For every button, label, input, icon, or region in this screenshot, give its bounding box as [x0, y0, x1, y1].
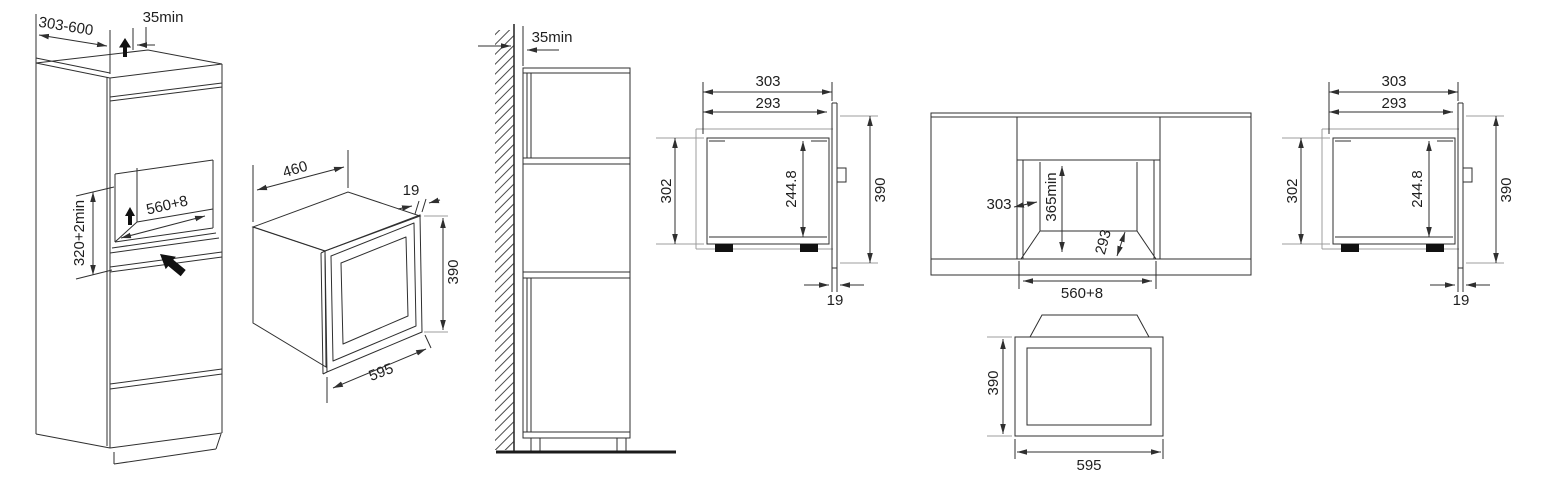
wall-hatching: [495, 30, 514, 450]
cabinet-plinth: [114, 434, 221, 464]
oven-frame-front: [1015, 337, 1163, 436]
oven-door-slab: [1458, 103, 1463, 292]
oven-cavity-lines: [1335, 141, 1453, 237]
niche-sill: [110, 233, 219, 253]
view-front-oven: 390 595: [985, 315, 1163, 474]
oven-body-top-face: [253, 192, 420, 251]
view-iso-tall-cabinet: 303-600 35min 560+8 320+2min: [36, 9, 222, 464]
dim-label-door-thickness: 19: [1453, 292, 1470, 309]
installation-diagram: 303-600 35min 560+8 320+2min 460 19 390: [0, 0, 1552, 486]
oven-foot-back: [1341, 244, 1359, 252]
cabinet-side-outline: [523, 68, 630, 438]
dim-label-body-height: 302: [1284, 178, 1301, 203]
niche-outline: [1322, 129, 1459, 249]
dim-label-cavity-height: 244.8: [783, 170, 800, 208]
dim-label-front-height: 390: [985, 370, 1002, 395]
dim-label-front-height: 390: [872, 177, 889, 202]
dim-label-niche-height: 320+2min: [71, 200, 88, 266]
dim-label-niche-side-depth: 303: [986, 196, 1011, 213]
lower-door: [110, 252, 222, 389]
cabinet-top-face: [36, 50, 222, 78]
front-width-extension-lines: [1015, 439, 1163, 459]
cabinet-foot-right: [617, 438, 626, 451]
door-handle-latch: [837, 168, 846, 182]
dim-label-overall-depth: 303: [755, 73, 780, 90]
view-iso-oven: 460 19 390 595: [253, 150, 462, 403]
dim-label-door-thickness: 19: [827, 292, 844, 309]
oven-foot-front: [1426, 244, 1444, 252]
dim-label-body-height: 302: [658, 178, 675, 203]
dim-label-niche-height: 365min: [1043, 172, 1060, 221]
niche-up-arrow-icon: [125, 207, 135, 225]
diagram-canvas: 303-600 35min 560+8 320+2min 460 19 390: [0, 0, 1552, 486]
oven-door-window: [341, 237, 408, 344]
dim-label-body-depth: 293: [755, 95, 780, 112]
oven-body-behind: [1030, 315, 1149, 337]
door-thickness-arrow-left: [398, 206, 412, 209]
door-handle-latch: [1463, 168, 1472, 182]
dim-label-depth-range: 303-600: [37, 14, 94, 39]
dim-label-body-depth: 293: [1381, 95, 1406, 112]
door-thickness-arrow-right: [429, 200, 440, 203]
dim-label-front-height: 390: [445, 259, 462, 284]
depth-range-dim-line: [39, 35, 107, 46]
dim-label-top-clearance: 35min: [143, 9, 184, 26]
dim-label-front-height: 390: [1498, 177, 1515, 202]
oven-body-section: [1333, 138, 1455, 244]
oven-foot-back: [715, 244, 733, 252]
oven-cavity-lines: [709, 141, 827, 237]
view-side-cabinet: 35min: [478, 24, 676, 452]
oven-body-section: [707, 138, 829, 244]
dim-label-wall-clearance: 35min: [532, 29, 573, 46]
view-side-section-right: 303 293 302 244.8 390 19: [1282, 73, 1515, 309]
airflow-up-arrow-icon: [119, 38, 131, 57]
cabinet-foot-left: [531, 438, 540, 451]
oven-door-slab: [832, 103, 837, 292]
oven-body-side-face: [253, 227, 326, 367]
view-front-cabinet: 303 365min 293 560+8: [931, 113, 1251, 302]
dim-label-front-width: 595: [1076, 457, 1101, 474]
niche-outline: [696, 129, 833, 249]
cabinet-front-outline: [931, 113, 1251, 275]
vent-gap-ticks: [133, 27, 146, 50]
dim-label-door-thickness: 19: [403, 182, 420, 199]
view-side-section-left: 303 293 302 244.8 390 19: [656, 73, 889, 309]
dim-label-cavity-height: 244.8: [1409, 170, 1426, 208]
dim-label-overall-depth: 303: [1381, 73, 1406, 90]
dim-label-niche-width: 560+8: [1061, 285, 1103, 302]
oven-foot-front: [800, 244, 818, 252]
door-thickness-ticks: [415, 199, 426, 214]
